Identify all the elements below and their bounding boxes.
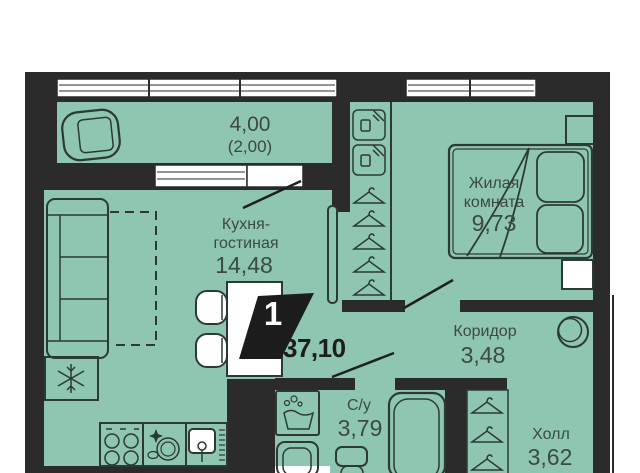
wall-bathroom-top-left — [275, 378, 355, 390]
kitchen-living-label-line2: гостиная — [213, 235, 278, 252]
wall-under-wardrobe — [342, 300, 405, 312]
floor-plan-canvas: 1 37,10 4,00 (2,00) Кухня- гостиная 14,4… — [0, 0, 640, 473]
living-room-area-value: 9,73 — [472, 210, 517, 236]
chair-icon — [196, 291, 227, 324]
shaft-icon — [562, 260, 593, 289]
floor-plan: 1 37,10 4,00 (2,00) Кухня- гостиная 14,4… — [0, 0, 640, 473]
living-room-label-line1: Жилая — [469, 175, 520, 192]
balcony-window-icon — [57, 79, 337, 97]
wall-left — [25, 163, 44, 473]
wall-bottom — [25, 466, 227, 473]
bathroom-label: С/у — [347, 397, 371, 414]
kitchen-living-label-line1: Кухня- — [222, 216, 270, 233]
balcony-area-reduced-value: (2,00) — [228, 137, 272, 156]
living-room-window-icon — [406, 79, 536, 97]
wall-kitchen-living — [332, 102, 350, 212]
balcony-door-window-icon — [155, 165, 303, 187]
wall-corridor-top — [460, 300, 610, 312]
wall-shaft — [227, 379, 275, 473]
total-area-value: 37,10 — [283, 333, 346, 363]
corridor-area-value: 3,48 — [461, 342, 506, 368]
wall-bathroom-top-right — [395, 378, 507, 390]
wall-outline-right — [612, 295, 614, 473]
door-leaf-icon — [328, 206, 337, 303]
corridor-label: Коридор — [453, 323, 516, 340]
wall-hall-divider — [445, 390, 467, 473]
hall-label: Холл — [532, 426, 570, 443]
flat-number: 1 — [264, 295, 282, 332]
balcony-floor — [57, 102, 337, 163]
living-room-label-line2: комната — [464, 194, 525, 211]
kitchen-living-area-value: 14,48 — [215, 252, 273, 278]
balcony-area-value: 4,00 — [230, 113, 271, 136]
wall-balcony-left — [25, 72, 57, 170]
hall-area-value: 3,62 — [528, 444, 573, 470]
chair-icon — [196, 334, 227, 367]
bathroom-area-value: 3,79 — [338, 415, 383, 441]
wall-right — [593, 72, 610, 473]
